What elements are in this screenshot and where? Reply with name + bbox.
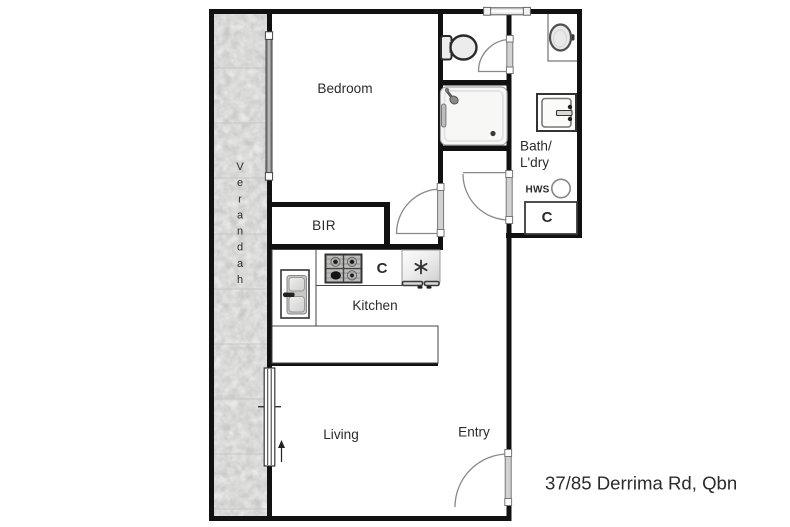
svg-text:a: a (237, 258, 244, 270)
svg-text:a: a (237, 209, 244, 221)
svg-text:Bedroom: Bedroom (317, 81, 372, 96)
svg-text:d: d (237, 242, 243, 254)
svg-text:h: h (237, 274, 243, 286)
svg-text:Bath/: Bath/ (520, 139, 552, 154)
svg-text:L'dry: L'dry (520, 155, 549, 170)
svg-text:e: e (237, 177, 243, 189)
svg-text:n: n (237, 226, 243, 238)
svg-text:Living: Living (323, 427, 359, 442)
svg-text:37/85 Derrima Rd, Qbn: 37/85 Derrima Rd, Qbn (545, 473, 737, 494)
svg-text:C: C (377, 260, 388, 277)
svg-text:C: C (542, 209, 553, 226)
svg-text:Entry: Entry (458, 425, 490, 440)
svg-text:r: r (238, 193, 242, 205)
svg-text:BIR: BIR (312, 218, 336, 233)
svg-text:V: V (236, 161, 244, 173)
svg-text:HWS: HWS (526, 185, 550, 196)
svg-text:Kitchen: Kitchen (352, 298, 397, 313)
